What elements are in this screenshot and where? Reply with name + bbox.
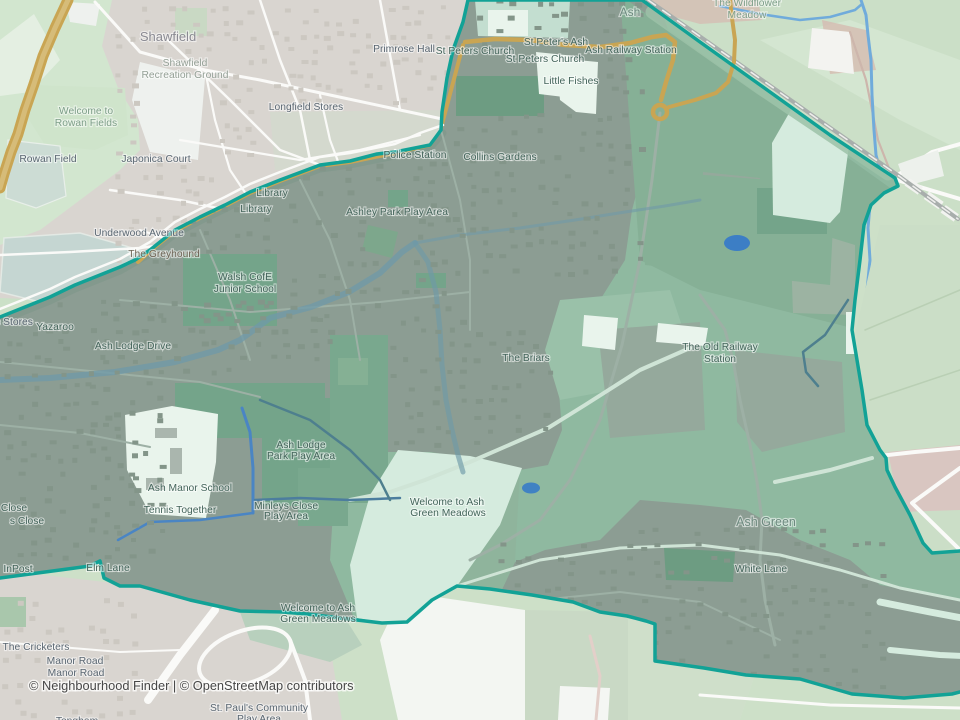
svg-text:Japonica Court: Japonica Court (121, 154, 190, 165)
svg-text:White Lane: White Lane (735, 564, 787, 575)
svg-text:Green Meadows: Green Meadows (280, 614, 356, 625)
svg-text:Ashley Park Play Area: Ashley Park Play Area (346, 207, 448, 218)
svg-text:Tennis Together: Tennis Together (144, 505, 217, 516)
svg-text:Yazaroo: Yazaroo (36, 322, 74, 333)
svg-text:The Greyhound: The Greyhound (128, 249, 200, 260)
svg-text:Shawfield: Shawfield (163, 58, 208, 69)
svg-text:The Briars: The Briars (502, 353, 550, 364)
svg-text:Elm Lane: Elm Lane (86, 563, 130, 574)
svg-text:Ash: Ash (620, 5, 641, 19)
svg-text:Tongham: Tongham (56, 716, 98, 720)
svg-text:s Stores: s Stores (0, 317, 33, 328)
svg-text:Longfield Stores: Longfield Stores (269, 102, 343, 113)
svg-text:Manor Road: Manor Road (47, 656, 104, 667)
svg-text:Primrose Hall: Primrose Hall (373, 44, 435, 55)
svg-text:Play Area: Play Area (264, 511, 308, 522)
svg-text:© Neighbourhood Finder | © Ope: © Neighbourhood Finder | © OpenStreetMap… (29, 678, 354, 693)
svg-text:St Peters Church: St Peters Church (436, 46, 515, 57)
svg-text:St Peters Church: St Peters Church (506, 54, 585, 65)
svg-text:Recreation Ground: Recreation Ground (141, 70, 228, 81)
svg-text:Play Area: Play Area (237, 714, 281, 720)
svg-text:St Peter's Ash: St Peter's Ash (524, 37, 589, 48)
svg-text:Underwood Avenue: Underwood Avenue (94, 228, 184, 239)
svg-text:Rowan Fields: Rowan Fields (55, 118, 117, 129)
svg-text:Ash Green: Ash Green (736, 515, 796, 529)
svg-text:Station: Station (704, 354, 736, 365)
svg-text:Library: Library (240, 204, 272, 215)
svg-text:s Close: s Close (10, 516, 45, 527)
svg-text:Welcome to Ash: Welcome to Ash (410, 497, 484, 508)
svg-text:The Old Railway: The Old Railway (682, 342, 758, 353)
svg-text:Walsh CofE: Walsh CofE (218, 272, 272, 283)
svg-text:Green Meadows: Green Meadows (410, 508, 486, 519)
svg-text:The Wildflower: The Wildflower (713, 0, 782, 9)
svg-text:Park Play Area: Park Play Area (267, 451, 335, 462)
svg-text:Meadow: Meadow (728, 10, 767, 21)
svg-text:Welcome to: Welcome to (59, 106, 113, 117)
svg-text:Police Station: Police Station (384, 150, 447, 161)
svg-text:Shawfield: Shawfield (140, 29, 196, 44)
svg-text:Rowan Field: Rowan Field (19, 154, 77, 165)
svg-text:Junior School: Junior School (214, 284, 276, 295)
svg-text:Ash Manor School: Ash Manor School (148, 483, 232, 494)
svg-text:St. Paul's Community: St. Paul's Community (210, 703, 309, 714)
svg-text:Welcome to Ash: Welcome to Ash (281, 603, 355, 614)
svg-text:Close: Close (1, 503, 28, 514)
svg-text:Ash Lodge Drive: Ash Lodge Drive (95, 341, 171, 352)
svg-text:Ash Railway Station: Ash Railway Station (585, 45, 677, 56)
svg-text:The Cricketers: The Cricketers (3, 642, 70, 653)
svg-text:Library: Library (256, 188, 288, 199)
svg-text:Ash Lodge: Ash Lodge (276, 440, 326, 451)
svg-text:Collins Gardens: Collins Gardens (463, 152, 536, 163)
svg-text:InPost: InPost (3, 564, 32, 575)
svg-text:Little Fishes: Little Fishes (544, 76, 599, 87)
